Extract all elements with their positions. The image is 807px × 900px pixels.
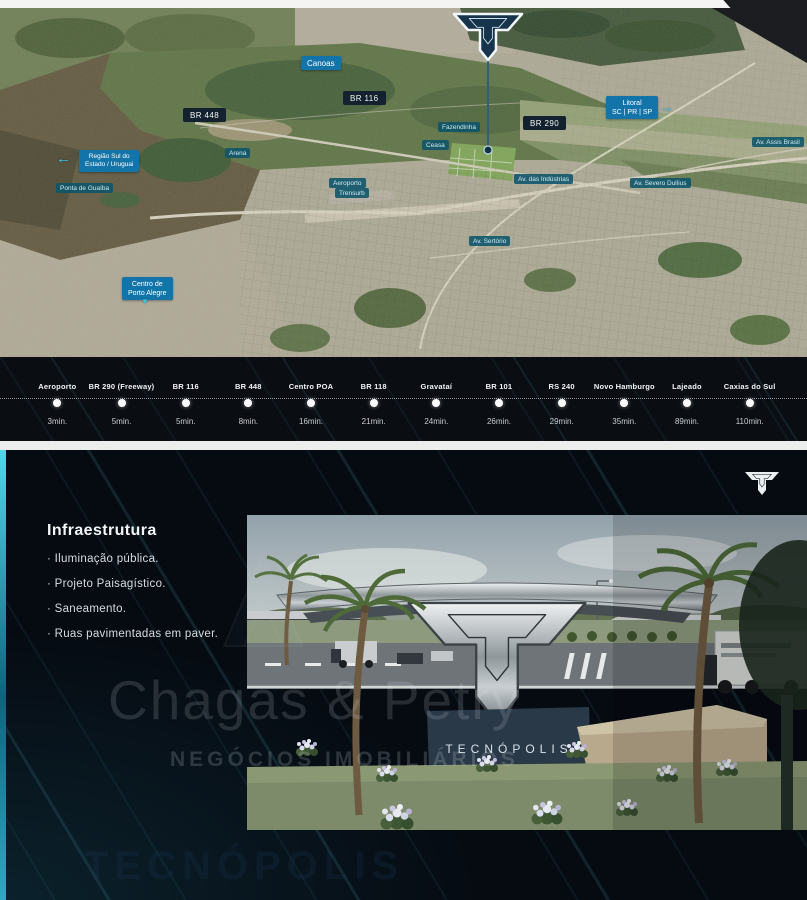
stop-time: 5min. bbox=[176, 408, 196, 426]
photo-corner bbox=[718, 0, 807, 8]
tecnopolis-logo-small-icon bbox=[744, 468, 780, 500]
timeline-stop: BR 116 5min. bbox=[154, 357, 217, 441]
map-label-arena: Arena bbox=[225, 148, 250, 158]
stop-dot-icon bbox=[432, 399, 440, 407]
map-label-sertorio: Av. Sertório bbox=[469, 236, 510, 246]
stop-time: 8min. bbox=[239, 408, 259, 426]
stop-label: BR 101 bbox=[486, 357, 513, 400]
section-divider bbox=[0, 441, 807, 450]
map-label-litoral: Litoral SC | PR | SP bbox=[606, 96, 658, 119]
stop-dot-icon bbox=[307, 399, 315, 407]
infrastructure-title: Infraestrutura bbox=[47, 522, 257, 540]
stop-dot-icon bbox=[495, 399, 503, 407]
stop-label: Caxias do Sul bbox=[724, 357, 776, 400]
map-label-aeroporto: Aeroporto bbox=[329, 178, 366, 188]
stop-time: 16min. bbox=[299, 408, 323, 426]
stop-dot-icon bbox=[558, 399, 566, 407]
brochure-page: Canoas BR 116 BR 448 BR 290 Litoral SC |… bbox=[0, 0, 807, 900]
map-label-av-industrias: Av. das Indústrias bbox=[514, 174, 573, 184]
infrastructure-item: · Ruas pavimentadas em paver. bbox=[47, 628, 257, 640]
stop-time: 26min. bbox=[487, 408, 511, 426]
stop-label: BR 118 bbox=[361, 357, 387, 400]
timeline-stop: Novo Hamburgo 35min. bbox=[593, 357, 656, 441]
map-label-br448: BR 448 bbox=[183, 108, 226, 122]
monument-name: TECNÓPOLIS bbox=[445, 741, 572, 756]
stop-dot-icon bbox=[620, 399, 628, 407]
timeline-stop: Centro POA 16min. bbox=[280, 357, 343, 441]
stop-dot-icon bbox=[746, 399, 754, 407]
stop-time: 89min. bbox=[675, 408, 699, 426]
timeline-stop: Caxias do Sul 110min. bbox=[718, 357, 781, 441]
footer-ghost-text: TECNÓPOLIS bbox=[84, 844, 404, 889]
stop-label: BR 448 bbox=[235, 357, 262, 400]
stop-time: 3min. bbox=[48, 408, 68, 426]
arrow-left-icon: ← bbox=[56, 150, 71, 167]
timeline-stop: BR 118 21min. bbox=[342, 357, 405, 441]
map-label-br116: BR 116 bbox=[343, 91, 386, 105]
timeline-stop: BR 101 26min. bbox=[468, 357, 531, 441]
stop-label: Novo Hamburgo bbox=[594, 357, 655, 400]
timeline-stop: Aeroporto 3min. bbox=[26, 357, 89, 441]
arrow-right-icon: → bbox=[659, 99, 674, 116]
stop-label: Gravataí bbox=[421, 357, 453, 400]
timeline-stop: BR 290 (Freeway) 5min. bbox=[89, 357, 155, 441]
timeline-stop: BR 448 8min. bbox=[217, 357, 280, 441]
stop-label: Centro POA bbox=[289, 357, 334, 400]
map-label-fazendinha: Fazendinha bbox=[438, 122, 480, 132]
infrastructure-item: · Projeto Paisagístico. bbox=[47, 578, 257, 590]
stop-time: 21min. bbox=[362, 408, 386, 426]
map-label-br290: BR 290 bbox=[523, 116, 566, 130]
map-label-severo-dullius: Av. Severo Dullius bbox=[630, 178, 691, 188]
stop-time: 110min. bbox=[736, 408, 764, 426]
infrastructure-list: · Iluminação pública.· Projeto Paisagíst… bbox=[47, 553, 257, 640]
accent-left-bar bbox=[0, 450, 6, 900]
top-margin bbox=[0, 0, 807, 8]
map-label-canoas: Canoas bbox=[301, 56, 341, 70]
infrastructure-block: Infraestrutura · Iluminação pública.· Pr… bbox=[47, 522, 257, 653]
stop-time: 29min. bbox=[550, 408, 574, 426]
stop-dot-icon bbox=[683, 399, 691, 407]
stop-dot-icon bbox=[182, 399, 190, 407]
map-label-regiao-sul: Região Sul do Estado / Uruguai bbox=[79, 150, 139, 172]
stop-dot-icon bbox=[118, 399, 126, 407]
map-label-ceasa: Ceasa bbox=[422, 140, 449, 150]
stop-time: 5min. bbox=[112, 408, 132, 426]
stop-label: RS 240 bbox=[549, 357, 575, 400]
stop-dot-icon bbox=[244, 399, 252, 407]
infrastructure-item: · Saneamento. bbox=[47, 603, 257, 615]
stop-time: 35min. bbox=[612, 408, 636, 426]
stop-label: Aeroporto bbox=[38, 357, 76, 400]
timeline-stop: RS 240 29min. bbox=[530, 357, 593, 441]
centro-line1: Centro de bbox=[128, 280, 167, 289]
infrastructure-section: Infraestrutura · Iluminação pública.· Pr… bbox=[0, 450, 807, 900]
stop-time: 24min. bbox=[424, 408, 448, 426]
timeline-stop: Gravataí 24min. bbox=[405, 357, 468, 441]
timeline-stops: Aeroporto 3min. BR 290 (Freeway) 5min. B… bbox=[26, 357, 781, 441]
travel-times-timeline: Aeroporto 3min. BR 290 (Freeway) 5min. B… bbox=[0, 357, 807, 441]
timeline-stop: Lajeado 89min. bbox=[656, 357, 719, 441]
infrastructure-item: · Iluminação pública. bbox=[47, 553, 257, 565]
litoral-line2: SC | PR | SP bbox=[612, 108, 652, 117]
regiao-line1: Região Sul do bbox=[85, 153, 133, 161]
stop-dot-icon bbox=[370, 399, 378, 407]
stop-dot-icon bbox=[53, 399, 61, 407]
stop-label: Lajeado bbox=[672, 357, 702, 400]
litoral-line1: Litoral bbox=[612, 99, 652, 108]
entrance-render-image: TECNÓPOLIS bbox=[247, 515, 807, 830]
arrow-down-icon: ▼ bbox=[141, 297, 149, 306]
regiao-line2: Estado / Uruguai bbox=[85, 161, 133, 169]
map-label-ponta-guaiba: Ponta de Guaíba bbox=[56, 183, 113, 193]
map-label-assis-brasil: Av. Assis Brasil bbox=[752, 137, 804, 147]
stop-label: BR 290 (Freeway) bbox=[89, 357, 155, 400]
stop-label: BR 116 bbox=[173, 357, 199, 400]
map-label-trensurb: Trensurb bbox=[335, 188, 369, 198]
